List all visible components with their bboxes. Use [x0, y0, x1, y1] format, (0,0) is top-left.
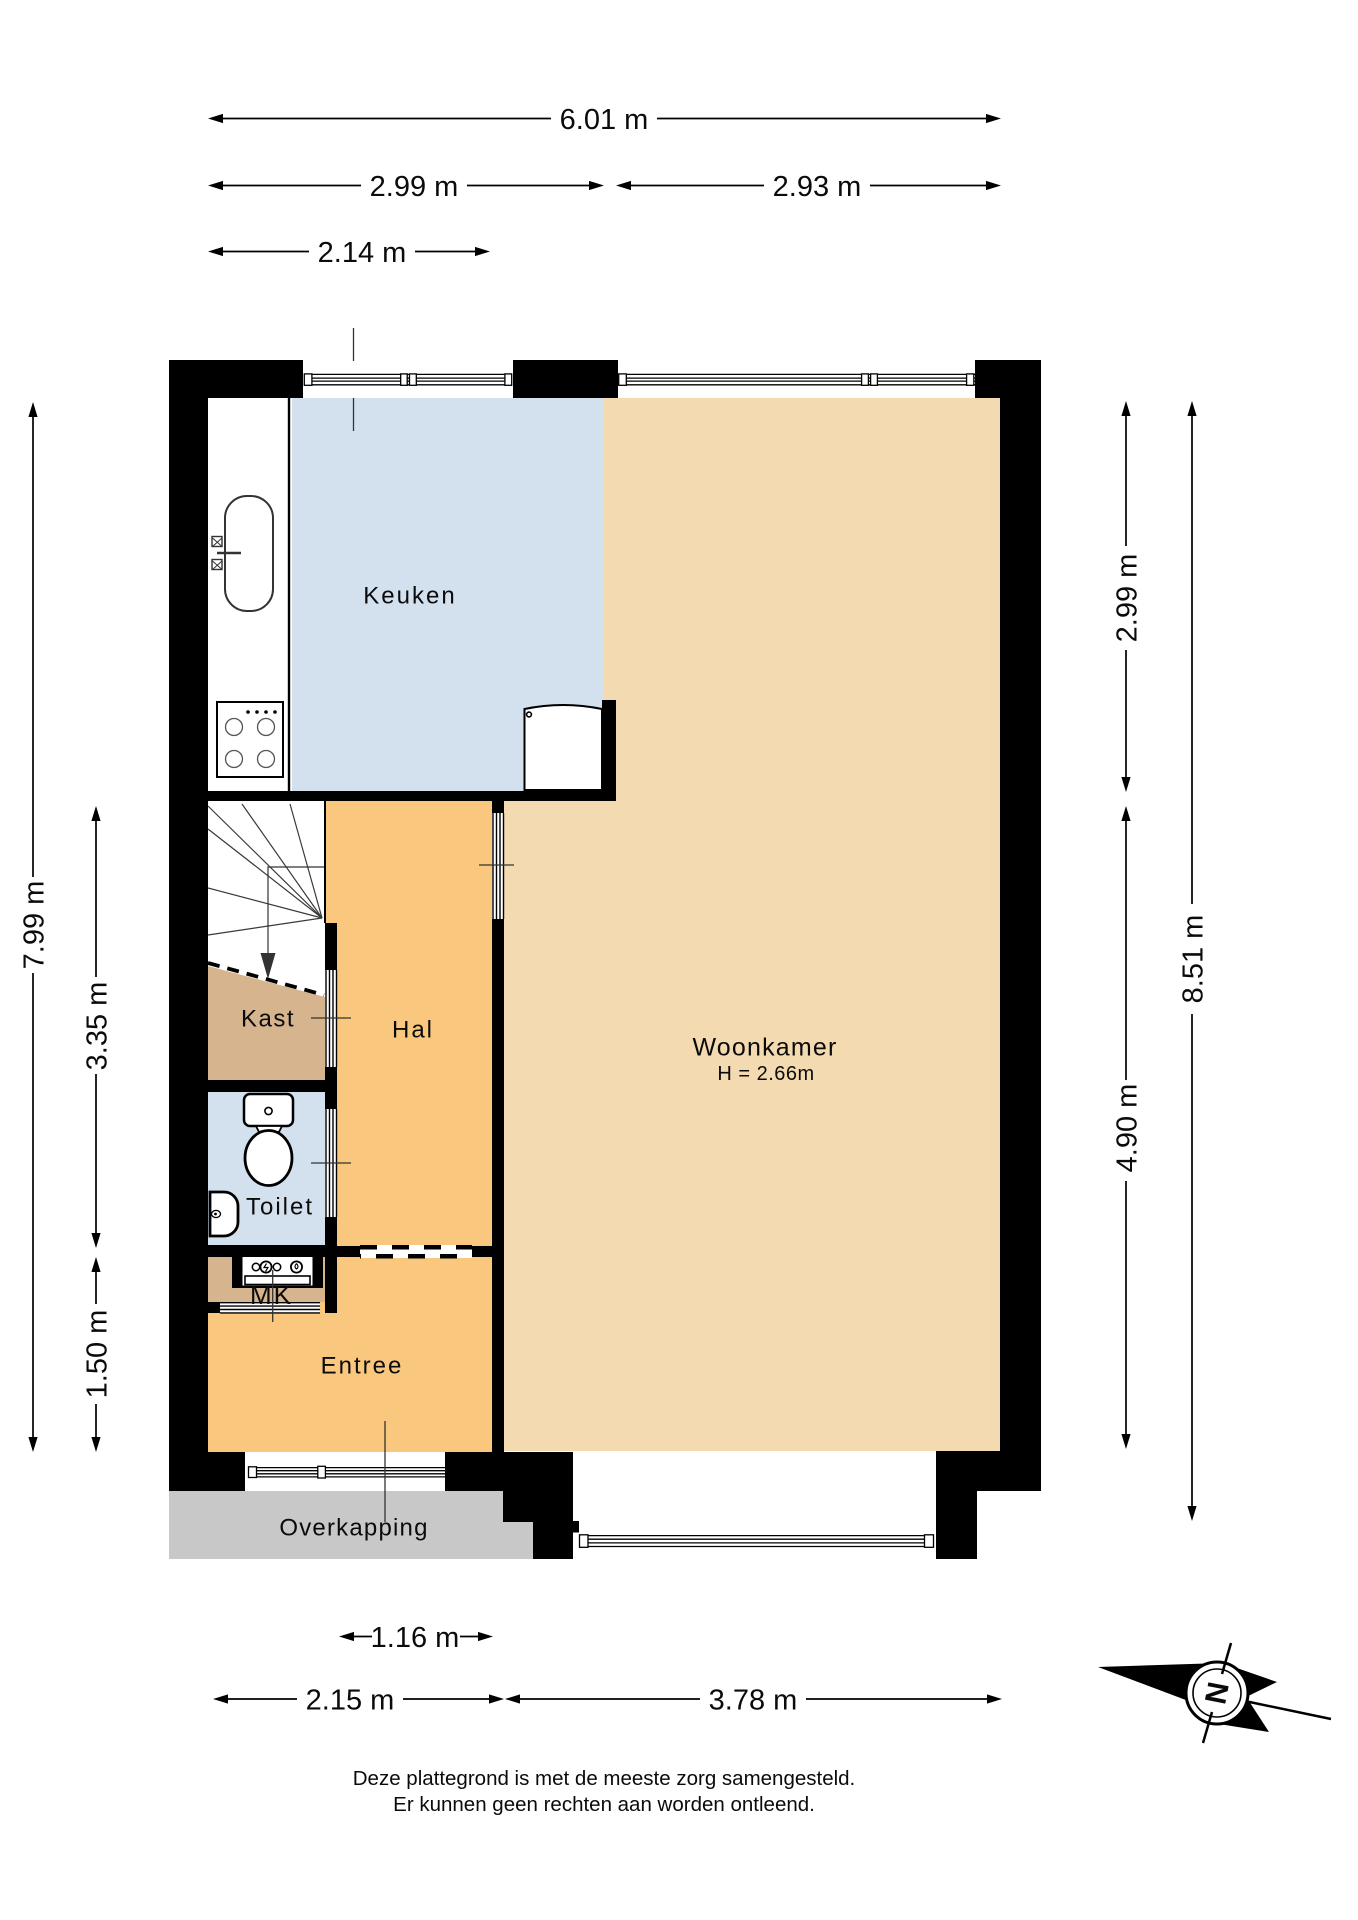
svg-text:8.51 m: 8.51 m — [1178, 915, 1210, 1004]
svg-text:6.01 m: 6.01 m — [560, 104, 649, 136]
svg-text:Keuken: Keuken — [363, 583, 456, 610]
svg-text:MK: MK — [250, 1280, 293, 1310]
svg-text:Er kunnen geen rechten aan wor: Er kunnen geen rechten aan worden ontlee… — [393, 1793, 815, 1816]
svg-text:3.78 m: 3.78 m — [709, 1685, 798, 1717]
svg-text:7.99 m: 7.99 m — [19, 881, 51, 970]
svg-text:Deze plattegrond is met de mee: Deze plattegrond is met de meeste zorg s… — [353, 1767, 856, 1790]
svg-text:2.99 m: 2.99 m — [370, 171, 459, 203]
svg-text:1.16 m: 1.16 m — [371, 1622, 460, 1654]
svg-text:2.99 m: 2.99 m — [1112, 554, 1144, 643]
svg-text:3.35 m: 3.35 m — [82, 982, 114, 1071]
svg-text:1.50 m: 1.50 m — [82, 1310, 114, 1399]
svg-text:Toilet: Toilet — [246, 1194, 314, 1221]
svg-text:2.93 m: 2.93 m — [773, 171, 862, 203]
svg-text:Woonkamer: Woonkamer — [692, 1034, 837, 1062]
svg-text:2.15 m: 2.15 m — [306, 1685, 395, 1717]
svg-text:Hal: Hal — [392, 1017, 434, 1044]
svg-text:Entree: Entree — [321, 1353, 404, 1380]
svg-text:2.14 m: 2.14 m — [318, 237, 407, 269]
svg-text:H = 2.66m: H = 2.66m — [717, 1063, 814, 1085]
svg-text:Overkapping: Overkapping — [279, 1515, 428, 1542]
svg-text:4.90 m: 4.90 m — [1112, 1084, 1144, 1173]
svg-text:Kast: Kast — [241, 1006, 295, 1033]
